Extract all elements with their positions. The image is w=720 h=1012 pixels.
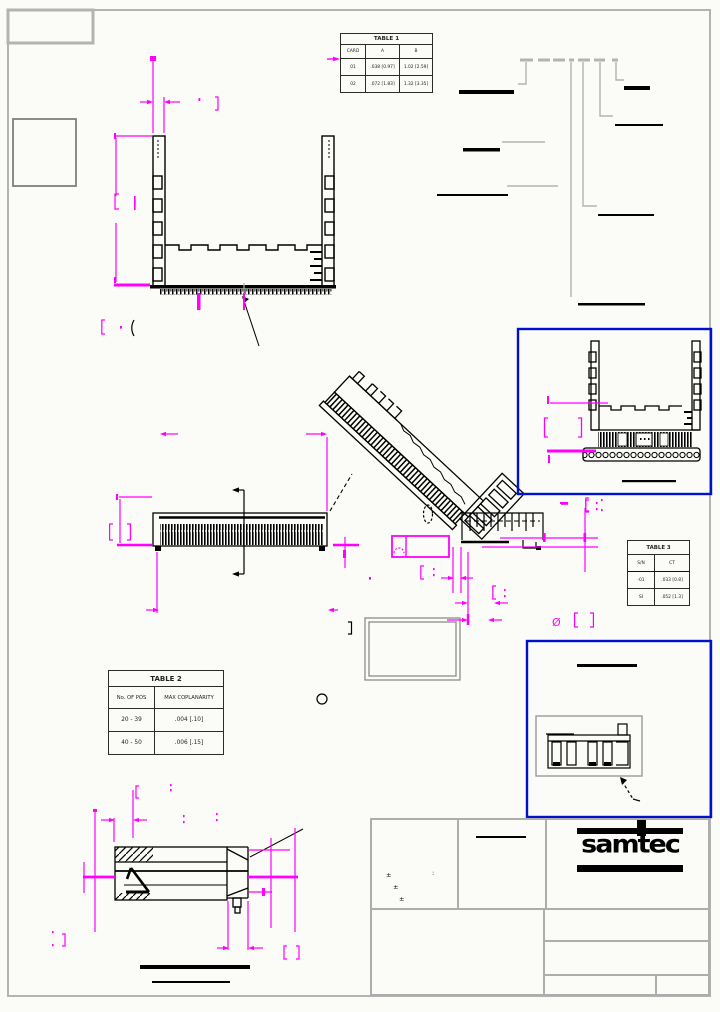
table-3-header: CT (655, 555, 689, 571)
plan-view-dims (110, 432, 371, 613)
logo-wordmark: samtec (577, 830, 683, 859)
title-row (545, 910, 708, 942)
revision-box (13, 119, 76, 186)
plus-minus-mark: ± (393, 884, 398, 890)
table-2: TABLE 2 No. OF POS MAX COPLANARITY 20 - … (108, 670, 224, 755)
notes-box-inner (369, 622, 456, 676)
drawing-number-cell (459, 820, 547, 910)
detail-box-1 (518, 329, 711, 494)
table1-arrow (327, 57, 340, 62)
detail-box-2 (527, 641, 711, 817)
hatch-top (115, 847, 153, 862)
zone-tab-box (8, 10, 93, 43)
solder-tail-hatch (160, 289, 332, 295)
logo-bottom-bar (577, 865, 683, 872)
table-1-header: B (400, 45, 432, 58)
end-profile-dims: Ø (421, 500, 598, 629)
table-row: 20 - 39 .004 [.10] (109, 709, 223, 732)
title-block: ± ± ± : samtec (370, 818, 710, 996)
table-3: TABLE 3 S/N CT -01 .033 [0.8] SI .052 [1… (627, 540, 690, 606)
front-view-dims (114, 56, 245, 310)
logo-cell: samtec (547, 820, 708, 910)
hatch-bottom (115, 893, 150, 900)
isometric-view (319, 351, 524, 549)
table-3-header: S/N (628, 555, 655, 571)
table-1: TABLE 1 CARD A B 01 .038 [0.97] 1.02 [2.… (340, 33, 433, 93)
redacted-label (577, 664, 637, 667)
bracket-remnant (348, 622, 352, 634)
tolerance-cell: ± ± ± : (372, 820, 459, 910)
circle-mark (317, 694, 327, 704)
redacted-label (622, 480, 676, 482)
table-2-title: TABLE 2 (109, 671, 223, 687)
solder-ball-strip (583, 448, 700, 461)
redacted-text-bar (476, 836, 526, 838)
notes-box-outer (365, 618, 460, 680)
table-1-header: CARD (341, 45, 366, 58)
colon-mark: : (432, 870, 434, 876)
plan-view (153, 487, 327, 576)
plus-minus-mark: ± (399, 896, 404, 902)
dim-text-remnants (102, 320, 134, 336)
title-block-right-column (543, 910, 708, 994)
redacted-view-sublabel (152, 981, 230, 983)
table-3-title: TABLE 3 (628, 541, 689, 555)
title-row (545, 976, 708, 994)
redacted-labels (437, 86, 663, 306)
table-row: -01 .033 [0.8] (628, 572, 689, 589)
redacted-view-label (140, 965, 250, 969)
callout-leaders (502, 62, 624, 297)
table-2-header: No. OF POS (109, 687, 155, 708)
dashed-detail-ellipse (424, 505, 433, 523)
solder-detail-callout (392, 536, 449, 557)
table-row: SI .052 [1.3] (628, 589, 689, 605)
table-row: 02 .072 [1.83] 1.32 [3.35] (341, 76, 432, 92)
detail-leader (620, 777, 640, 801)
diameter-symbol: Ø (552, 616, 561, 629)
table-2-header: MAX COPLANARITY (155, 687, 223, 708)
contact-comb (160, 524, 324, 545)
section-view (115, 829, 303, 913)
table-1-header: A (366, 45, 400, 58)
title-row (545, 942, 708, 976)
drawing-sheet: Ø (0, 0, 720, 1012)
samtec-logo: samtec (577, 828, 683, 884)
part-number-callouts (437, 60, 663, 306)
table-row: 01 .038 [0.97] 1.02 [2.59] (341, 59, 432, 76)
table-row: 40 - 50 .006 [.15] (109, 732, 223, 754)
front-view (150, 136, 336, 346)
plus-minus-mark: ± (386, 872, 391, 878)
iso-leader (330, 474, 352, 511)
table-1-title: TABLE 1 (341, 34, 432, 45)
